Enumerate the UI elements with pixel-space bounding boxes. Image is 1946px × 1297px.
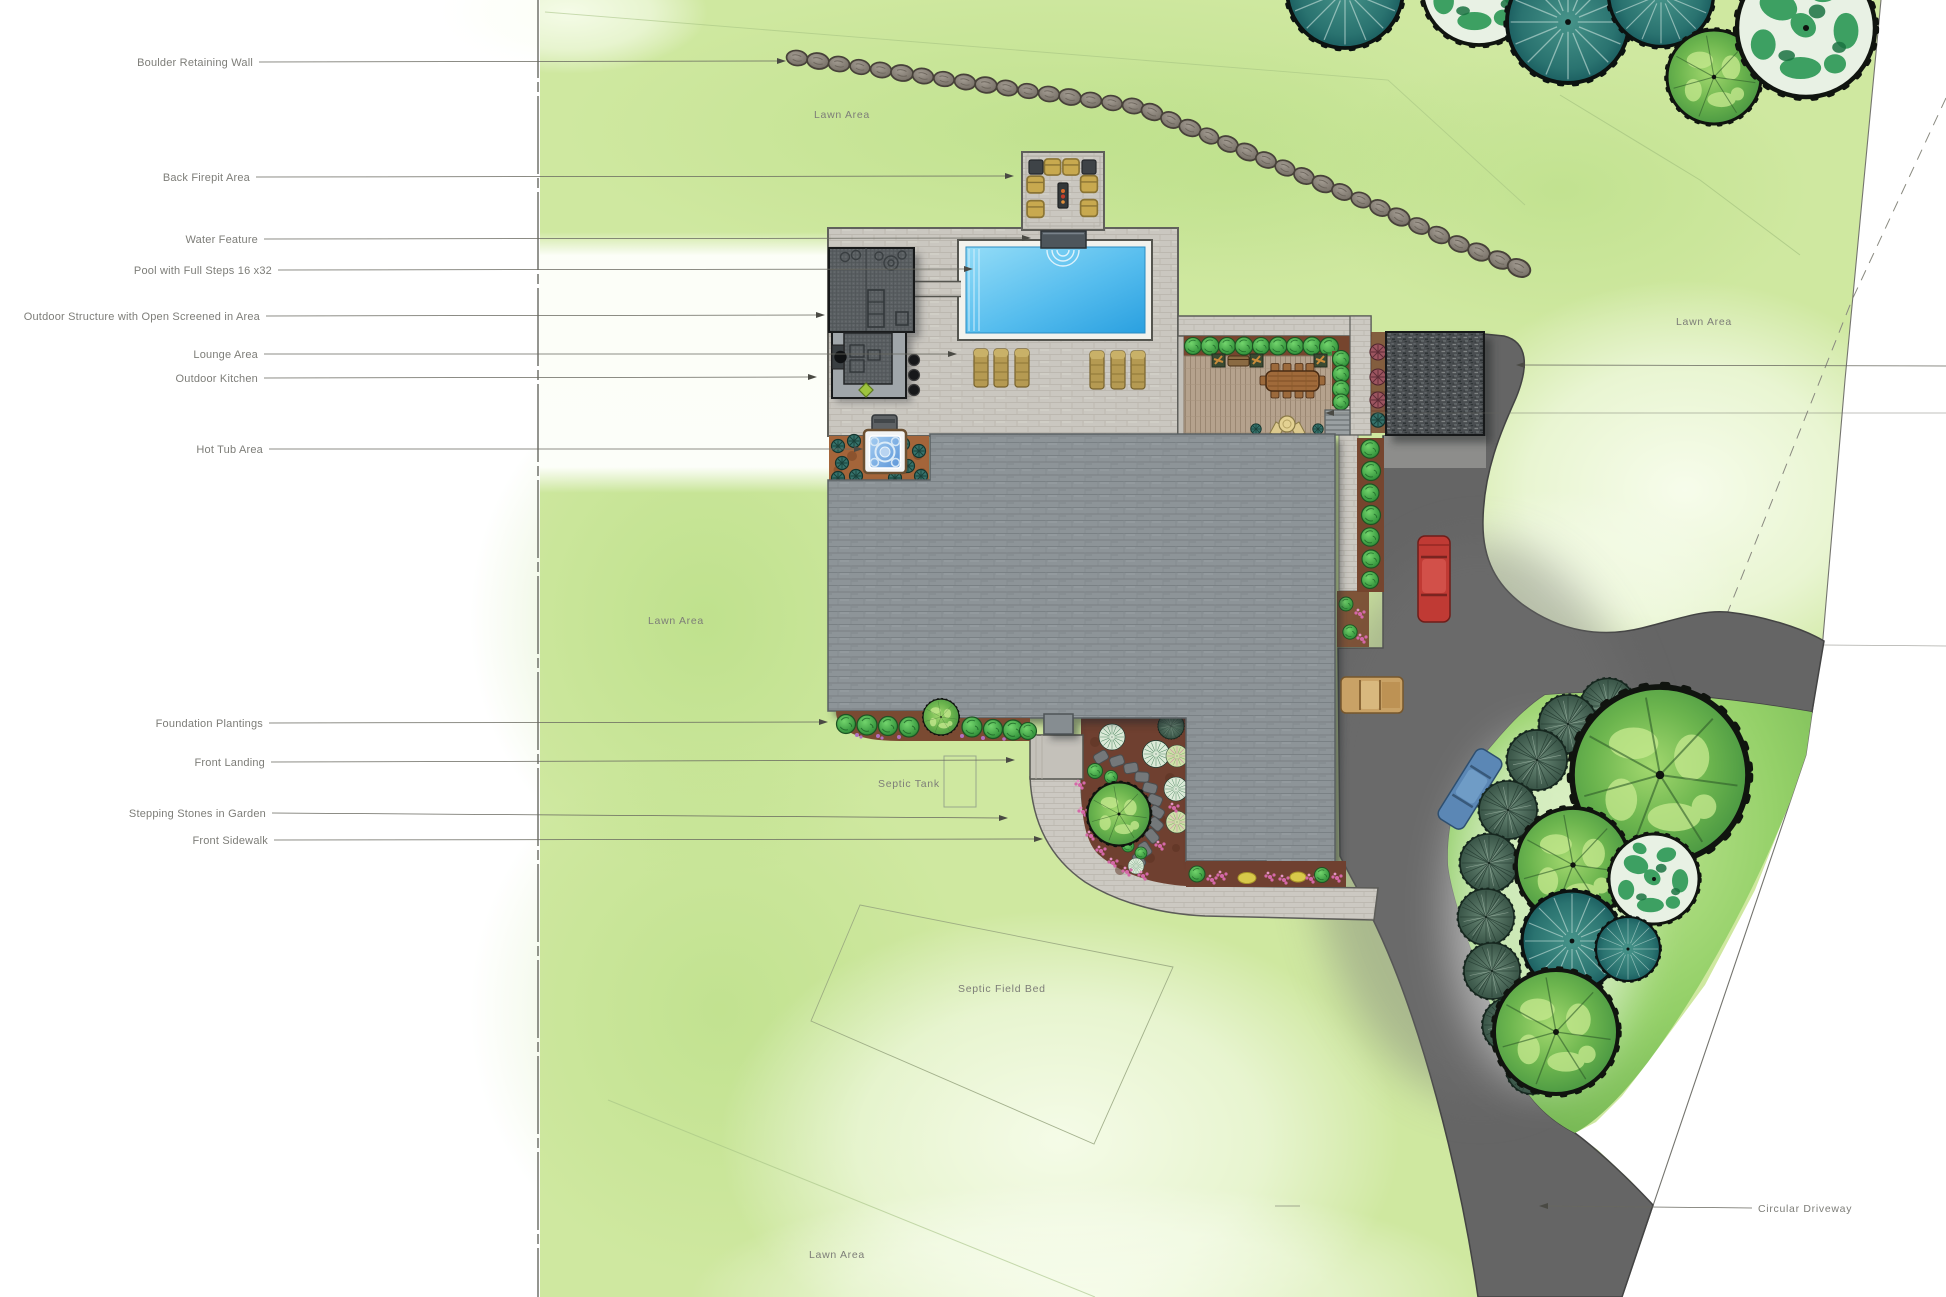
- svg-text:Lounge Area: Lounge Area: [193, 349, 258, 361]
- svg-text:Outdoor Structure with Open Sc: Outdoor Structure with Open Screened in …: [24, 311, 261, 323]
- svg-text:Boulder Retaining Wall: Boulder Retaining Wall: [137, 57, 253, 69]
- svg-text:Back Firepit Area: Back Firepit Area: [163, 172, 251, 184]
- svg-text:Septic Field Bed: Septic Field Bed: [958, 983, 1046, 995]
- svg-text:Hot Tub Area: Hot Tub Area: [196, 444, 263, 456]
- svg-text:Circular Driveway: Circular Driveway: [1758, 1203, 1852, 1215]
- svg-text:Lawn Area: Lawn Area: [814, 109, 870, 121]
- svg-text:Septic Tank: Septic Tank: [878, 778, 940, 790]
- svg-text:Foundation Plantings: Foundation Plantings: [156, 718, 264, 730]
- svg-text:Front Sidewalk: Front Sidewalk: [192, 835, 268, 847]
- svg-text:Lawn Area: Lawn Area: [1676, 316, 1732, 328]
- svg-text:Lawn Area: Lawn Area: [809, 1249, 865, 1261]
- svg-text:Pool with Full Steps 16 x32: Pool with Full Steps 16 x32: [134, 265, 272, 277]
- svg-text:Stepping Stones in Garden: Stepping Stones in Garden: [129, 808, 266, 820]
- svg-text:Lawn Area: Lawn Area: [648, 615, 704, 627]
- svg-text:Front Landing: Front Landing: [195, 757, 265, 769]
- svg-text:Outdoor Kitchen: Outdoor Kitchen: [176, 373, 259, 385]
- svg-text:Water Feature: Water Feature: [186, 234, 259, 246]
